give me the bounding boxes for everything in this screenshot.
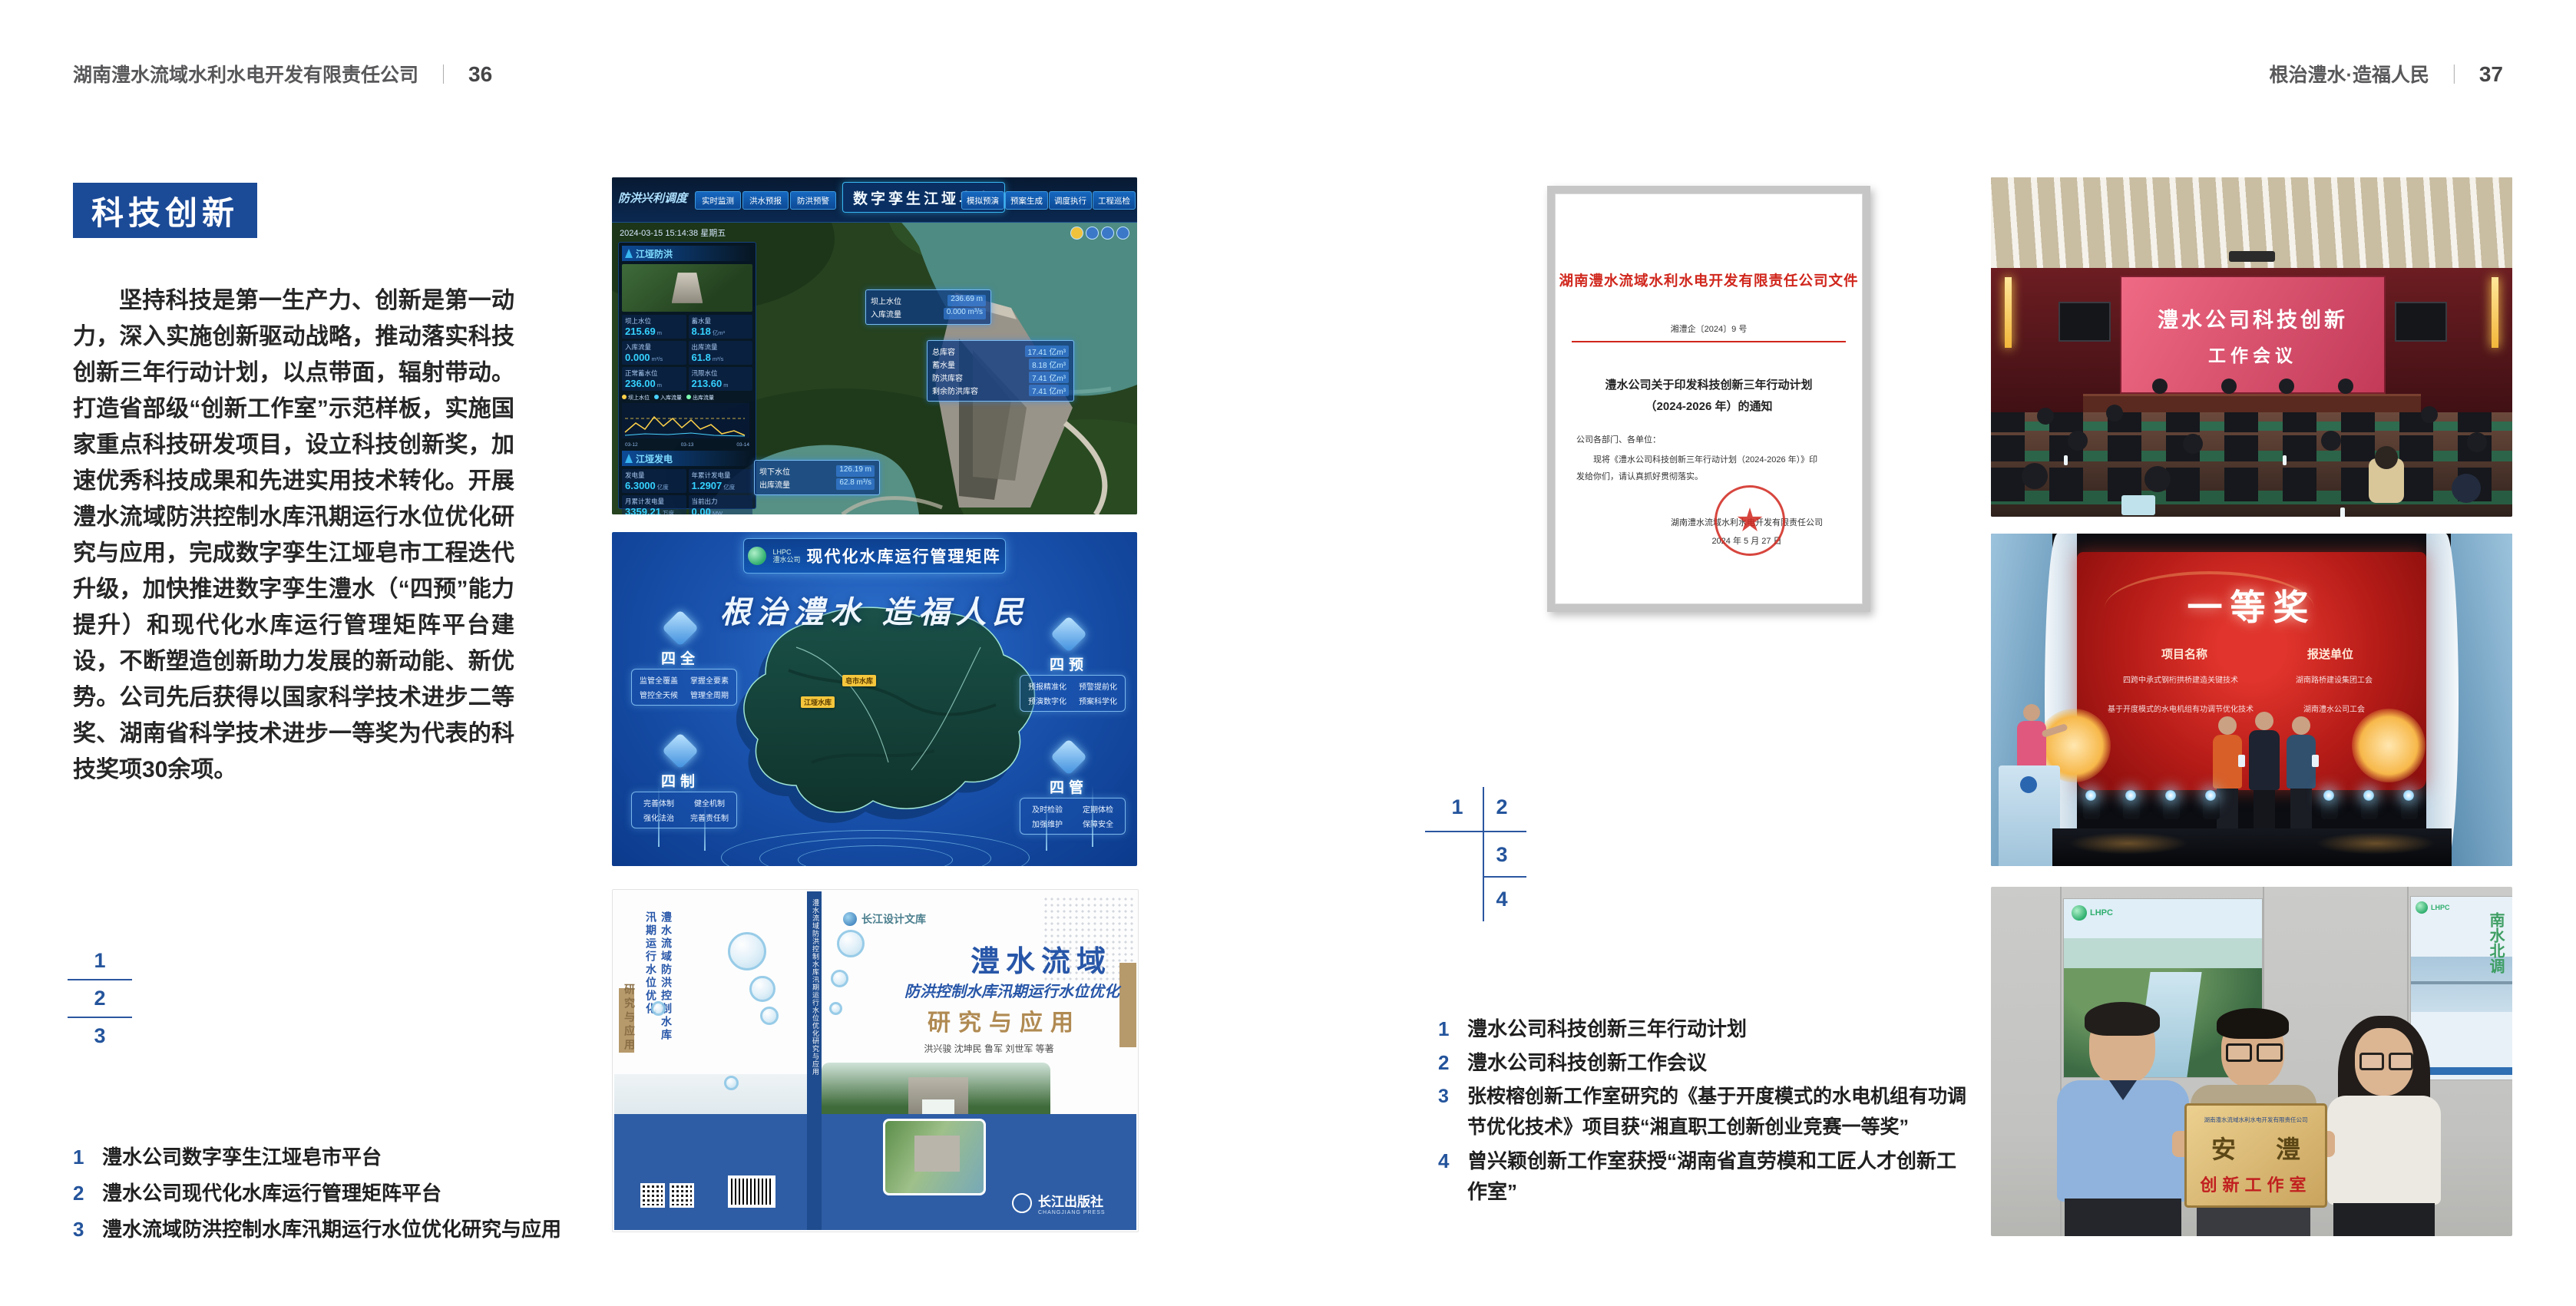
person-shirt-white — [2327, 1096, 2441, 1205]
stat-value: 213.60 — [692, 378, 723, 389]
matrix-panel-siquan: 监管全覆盖 掌握全要素 管控全天候 管理全周期 — [631, 669, 737, 706]
tab-plan-generation[interactable]: 预案生成 — [1005, 191, 1048, 210]
shirt-collar — [2109, 1080, 2137, 1100]
stat-label: 年累计发电量 — [692, 471, 750, 480]
callout-label: 坝上水位 — [871, 295, 901, 306]
caption-right-4: 4 曾兴颖创新工作室获授“湖南省直劳模和工匠人才创新工作室” — [1438, 1146, 1968, 1207]
avatar-icon[interactable] — [1070, 226, 1083, 240]
figure-number: 2 — [1486, 795, 1517, 819]
figure-meeting-photo: 澧水公司科技创新 工作会议 — [1991, 177, 2512, 517]
document-number: 湘澧企〔2024〕9 号 — [1555, 322, 1863, 335]
callout-label: 出库流量 — [759, 478, 790, 490]
attendee-head — [2022, 463, 2048, 489]
caption-number: 1 — [1438, 1013, 1467, 1044]
tab-inspection[interactable]: 工程巡检 — [1093, 191, 1136, 210]
matrix-panel-siyu: 预报精准化 预警提前化 预演数字化 预案科学化 — [1020, 675, 1126, 712]
matrix-title: 现代化水库运行管理矩阵 — [807, 544, 1001, 567]
panel-item: 监管全覆盖 — [635, 674, 683, 686]
innovation-studio-plaque: 湖南澧水流域水利水电开发有限责任公司 安 澧 创新工作室 — [2184, 1103, 2327, 1208]
brochure-spread: 湖南澧水流域水利水电开发有限责任公司 ｜ 36 根治澧水·造福人民 ｜ 37 科… — [0, 0, 2576, 1306]
attendee-head — [2106, 405, 2123, 422]
page-number-left: 36 — [468, 62, 492, 87]
stat-unit: MW — [713, 510, 723, 514]
figure-award-photo: 一等奖 项目名称 报送单位 四跨中承式钢桁拱桥建造关键技术 基于开度模式的水电机… — [1991, 534, 2512, 866]
panel-item: 预警提前化 — [1074, 680, 1122, 692]
chart-x-axis: 03-12 03-13 03-14 — [622, 442, 752, 448]
figure-number: 3 — [1486, 843, 1517, 867]
light-pillar — [1092, 785, 1093, 847]
attendee-head — [2037, 408, 2054, 425]
stat-label: 出库流量 — [692, 342, 750, 352]
matrix-panel-sizhi: 完善体制 健全机制 强化法治 完善责任制 — [631, 792, 737, 828]
callout-capacity: 总库容17.41 亿m³ 蓄水量8.18 亿m³ 防洪库容7.41 亿m³ 剩余… — [927, 340, 1074, 402]
figure-number: 1 — [1442, 795, 1473, 819]
glasses-icon — [2359, 1053, 2384, 1070]
panel-title: 四制 — [631, 770, 729, 791]
speaker-head — [2279, 379, 2294, 394]
plaque-subtitle: 创新工作室 — [2200, 1172, 2311, 1196]
callout-label: 坝下水位 — [759, 465, 790, 477]
panel-item: 掌握全要素 — [686, 674, 733, 686]
stage-pillar — [2426, 534, 2459, 866]
lhpc-logo-icon — [748, 547, 766, 565]
callout-label: 入库流量 — [871, 308, 901, 319]
plaque-name: 安 澧 — [2194, 1130, 2317, 1165]
host-figure — [2017, 721, 2046, 772]
barcode — [728, 1175, 775, 1208]
document-title: 湖南澧水流域水利水电开发有限责任公司文件 — [1555, 270, 1863, 290]
panel-item: 预演数字化 — [1023, 695, 1071, 706]
stage-floor — [2052, 828, 2452, 866]
callout-value: 236.69 m — [947, 295, 986, 306]
caption-text: 澧水公司数字孪生江垭皂市平台 — [102, 1142, 382, 1172]
wall-tv — [2058, 302, 2111, 342]
caption-number: 2 — [73, 1178, 102, 1208]
lhpc-logo-icon — [2072, 905, 2087, 921]
index-divider — [1483, 787, 1484, 921]
award-title: 一等奖 — [2077, 580, 2426, 630]
light-pillar — [704, 805, 706, 851]
document-subject-line1: 澧水公司关于印发科技创新三年行动计划 — [1555, 376, 1863, 392]
glasses-icon — [2226, 1043, 2252, 1062]
tab-simulation[interactable]: 模拟预演 — [961, 191, 1004, 210]
matrix-header: LHPC 澧水公司 现代化水库运行管理矩阵 — [743, 538, 1006, 574]
document-body-line2: 发给你们，请认真抓好贯彻落实。 — [1576, 470, 1844, 482]
panel-item: 及时检验 — [1023, 803, 1071, 815]
caption-number: 3 — [73, 1214, 102, 1245]
bell-icon[interactable] — [1086, 226, 1099, 240]
stat-label: 坝上水位 — [625, 316, 683, 326]
stat-unit: m — [657, 329, 662, 336]
stat-value: 0.000 — [625, 352, 650, 363]
trophy — [2238, 755, 2245, 767]
tab-flood-warning[interactable]: 防洪预警 — [790, 191, 836, 210]
water-bottle — [2283, 455, 2287, 465]
presenter-head — [2255, 712, 2273, 730]
caption-text: 澧水公司科技创新工作会议 — [1467, 1047, 1707, 1078]
glasses-icon — [2257, 1043, 2283, 1062]
stat-label: 月累计发电量 — [625, 497, 683, 506]
glasses-icon — [2389, 1053, 2413, 1070]
stage-light — [2123, 796, 2140, 819]
legend-item: 出库流量 — [693, 395, 714, 401]
award-unit: 湖南路桥建设集团工会 — [2273, 673, 2396, 685]
back-cover-tail: 研究与应用 — [622, 984, 637, 1060]
publisher-logo-icon — [1012, 1193, 1032, 1213]
recipient-head — [2292, 716, 2310, 735]
header-separator: ｜ — [2445, 60, 2464, 88]
stat-value: 6.3000 — [625, 480, 656, 491]
stage-light — [2401, 796, 2418, 819]
x-tick: 03-14 — [736, 442, 749, 448]
attendee-head — [2452, 474, 2481, 503]
figure-number: 4 — [1486, 888, 1517, 911]
book-spine: 澧水流域防洪控制水库汛期运行水位优化研究与应用 — [807, 891, 822, 1230]
callout-value: 8.18 亿m³ — [1029, 359, 1069, 370]
panel-item: 加强维护 — [1023, 818, 1071, 829]
lhpc-logo-icon — [2416, 901, 2428, 914]
body-paragraph: 坚持科技是第一生产力、创新是第一动力，深入实施创新驱动战略，推动落实科技创新三年… — [73, 283, 514, 788]
panel-title: 四全 — [631, 647, 729, 668]
stat-label: 发电量 — [625, 471, 683, 480]
callout-downstream: 坝下水位126.19 m 出库流量62.8 m³/s — [754, 460, 880, 495]
section-title: 科技创新 — [73, 183, 257, 238]
index-divider — [1425, 831, 1526, 832]
stage-light — [2361, 796, 2378, 819]
header-separator: ｜ — [434, 60, 453, 88]
award-col-right-header: 报送单位 — [2269, 646, 2392, 662]
caption-left-2: 2 澧水公司现代化水库运行管理矩阵平台 — [73, 1178, 580, 1208]
award-project: 四跨中承式钢桁拱桥建造关键技术 — [2100, 673, 2261, 685]
caption-text: 张桉榕创新工作室研究的《基于开度模式的水电机组有功调节优化技术》项目获“湘直职工… — [1467, 1081, 1976, 1142]
stat-unit: 亿度 — [657, 484, 669, 491]
panel-item: 完善责任制 — [686, 812, 733, 823]
caption-text: 澧水公司现代化水库运行管理矩阵平台 — [102, 1178, 441, 1208]
red-rule — [1572, 341, 1846, 342]
spine-title: 澧水流域防洪控制水库汛期运行水位优化研究与应用 — [811, 899, 821, 1152]
panel-title: 四管 — [1020, 776, 1118, 797]
water-bottle — [2340, 508, 2345, 517]
callout-label: 剩余防洪库容 — [932, 385, 978, 396]
book-title-tail: 研究与应用 — [904, 1003, 1104, 1037]
figure-index-left: 1 2 3 — [68, 949, 132, 1048]
wall-tv — [2395, 302, 2447, 342]
attendee-head — [2068, 431, 2088, 451]
light-pillar — [1046, 801, 1047, 851]
stage-light — [2321, 796, 2338, 819]
water-level-chart — [622, 403, 749, 438]
bubble-decoration — [837, 930, 865, 957]
seat-row — [1991, 468, 2512, 501]
callout-label: 蓄水量 — [932, 359, 955, 370]
figure-book-cover: 澧水流域防洪控制水库汛期运行水位优化 研究与应用 澧水流域防洪控制水库汛期运行水… — [612, 889, 1139, 1232]
bubble-decoration — [651, 1001, 666, 1016]
person-hair — [2217, 1008, 2289, 1039]
caption-left-1: 1 澧水公司数字孪生江垭皂市平台 — [73, 1142, 580, 1172]
stat-value: 8.18 — [692, 326, 711, 337]
person-trousers — [2065, 1199, 2181, 1236]
publisher-name: 长江出版社 — [1038, 1191, 1106, 1210]
bubble-decoration — [749, 976, 775, 1002]
person-skirt — [2333, 1203, 2435, 1236]
stat-value: 215.69 — [625, 326, 656, 337]
stage-light — [2083, 796, 2100, 819]
rostrum-table — [2083, 394, 2421, 415]
speaker-head — [2221, 379, 2237, 394]
poster-vertical-title: 南水北调 — [2485, 912, 2507, 1027]
qr-code — [670, 1183, 694, 1208]
tab-realtime-monitor[interactable]: 实时监测 — [695, 191, 741, 210]
person-hair — [2085, 1002, 2160, 1036]
caption-text: 曾兴颖创新工作室获授“湖南省直劳模和工匠人才创新工作室” — [1467, 1146, 1968, 1207]
podium-emblem-icon — [2020, 776, 2037, 793]
dam-shape — [672, 273, 703, 303]
globe-icon — [843, 912, 857, 926]
figure-number: 3 — [68, 1024, 132, 1048]
bubble-decoration — [829, 1002, 842, 1015]
panel-title: 江垭发电 — [622, 451, 752, 466]
front-tan-tab — [1119, 963, 1136, 1047]
figure-number: 1 — [68, 949, 132, 973]
figure-management-matrix: LHPC 澧水公司 现代化水库运行管理矩阵 根治澧水 造福人民 皂市水库 江垭水… — [612, 532, 1137, 866]
panel-item: 预案科学化 — [1074, 695, 1122, 706]
callout-value: 62.8 m³/s — [836, 478, 875, 490]
document-body-line1: 现将《澧水公司科技创新三年行动计划（2024-2026 年）》印 — [1593, 453, 1844, 465]
figure-number: 2 — [68, 987, 132, 1010]
stat-label: 当前出力 — [692, 497, 750, 506]
power-stats: 发电量6.3000亿度 年累计发电量1.2907亿度 月累计发电量3359.21… — [622, 469, 752, 514]
stat-unit: 万度 — [663, 510, 674, 514]
dashboard-corner-label: 防洪兴利调度 — [618, 190, 687, 206]
wall-lamp — [2492, 277, 2498, 348]
caption-right-2: 2 澧水公司科技创新工作会议 — [1438, 1047, 1968, 1078]
qr-code — [640, 1183, 665, 1208]
caption-number: 4 — [1438, 1146, 1467, 1207]
floor-reflection — [2068, 832, 2188, 855]
panel-item: 预报精准化 — [1023, 680, 1071, 692]
series-row: 长江设计文库 — [843, 911, 926, 927]
caption-right-3: 3 张桉榕创新工作室研究的《基于开度模式的水电机组有功调节优化技术》项目获“湘直… — [1438, 1081, 1976, 1142]
legend-item: 坝上水位 — [628, 395, 650, 401]
panel-item: 管理全周期 — [686, 689, 733, 700]
tissue-box — [2121, 495, 2155, 515]
stat-unit: m³/s — [713, 355, 724, 362]
stat-unit: m³/s — [652, 355, 663, 362]
caption-text: 澧水公司科技创新三年行动计划 — [1467, 1013, 1747, 1044]
company-name: 湖南澧水流域水利水电开发有限责任公司 — [73, 60, 418, 88]
tab-dispatch[interactable]: 调度执行 — [1049, 191, 1092, 210]
dam-thumbnail — [622, 264, 752, 312]
stat-unit: m — [723, 382, 728, 388]
chart-legend: 坝上水位 入库流量 出库流量 — [622, 394, 752, 402]
cover-photo-station — [883, 1119, 986, 1195]
stat-value: 1.2907 — [692, 480, 723, 491]
reservoir-stats: 坝上水位215.69m 蓄水量8.18亿m³ 入库流量0.000m³/s 出库流… — [622, 315, 752, 391]
attendee-head — [2321, 431, 2341, 451]
caption-text: 澧水流域防洪控制水库汛期运行水位优化研究与应用 — [102, 1214, 561, 1245]
host-head — [2023, 704, 2040, 721]
attendee-head — [2421, 406, 2438, 423]
speaker-head — [2152, 379, 2168, 394]
recipient-head — [2218, 716, 2237, 735]
dashboard-left-panel: 江垭防洪 坝上水位215.69m 蓄水量8.18亿m³ 入库流量0.000m³/… — [618, 242, 756, 509]
logo-abbr: LHPC — [772, 548, 800, 556]
page-header-right: 根治澧水·造福人民 ｜ 37 — [2270, 60, 2504, 88]
caption-right-1: 1 澧水公司科技创新三年行动计划 — [1438, 1013, 1968, 1044]
screen-title-line1: 澧水公司科技创新 — [2158, 303, 2348, 333]
matrix-panel-siguan: 及时检验 定期体检 加强维护 保障安全 — [1020, 798, 1126, 835]
screen-title-line2: 工作会议 — [2208, 341, 2297, 367]
document-sheet: 湖南澧水流域水利水电开发有限责任公司文件 湘澧企〔2024〕9 号 澧水公司关于… — [1555, 193, 1863, 604]
caption-number: 1 — [73, 1142, 102, 1172]
water-bottle — [2064, 455, 2068, 465]
award-project: 基于开度模式的水电机组有功调节优化技术 — [2100, 703, 2261, 714]
stage-light — [2163, 796, 2180, 819]
index-divider — [1483, 876, 1526, 878]
meeting-screen: 澧水公司科技创新 工作会议 — [2120, 276, 2386, 394]
trophy — [2312, 755, 2319, 767]
caption-left-3: 3 澧水流域防洪控制水库汛期运行水位优化研究与应用 — [73, 1214, 580, 1245]
stat-label: 入库流量 — [625, 342, 683, 352]
panel-title: 四预 — [1020, 653, 1118, 674]
dam-shape — [914, 1136, 960, 1172]
callout-value: 7.41 亿m³ — [1029, 385, 1069, 396]
attendee-head — [2183, 434, 2203, 454]
publisher-en: CHANGJIANG PRESS — [1038, 1210, 1106, 1215]
bubble-decoration — [760, 1007, 779, 1025]
award-col-left-header: 项目名称 — [2123, 646, 2246, 662]
host-podium — [1999, 765, 2060, 866]
figure-plaque-photo: LHPC LHPC 南水北调 — [1991, 887, 2512, 1236]
official-seal-icon — [1715, 485, 1785, 556]
back-cover-title: 澧水流域防洪控制水库汛期运行水位优化 — [643, 911, 674, 1048]
stage-light — [2203, 796, 2220, 819]
person-shirt-blue — [2057, 1080, 2189, 1202]
x-tick: 03-13 — [681, 442, 694, 448]
book-title-main: 澧水流域 — [866, 937, 1112, 980]
bubble-decoration — [728, 932, 766, 970]
caption-number: 3 — [1438, 1081, 1467, 1142]
dashboard-timestamp: 2024-03-15 15:14:38 星期五 — [620, 226, 726, 239]
legend-item: 入库流量 — [660, 395, 682, 401]
stat-unit: 亿m³ — [713, 329, 725, 336]
logo-name: 澧水公司 — [772, 556, 800, 564]
projector — [2229, 251, 2275, 262]
back-water-band — [614, 1074, 807, 1114]
speaker-head — [2338, 379, 2353, 394]
series-name: 长江设计文库 — [861, 911, 926, 927]
x-tick: 03-12 — [625, 442, 638, 448]
back-bottom-band — [614, 1114, 807, 1230]
callout-value: 7.41 亿m³ — [1029, 372, 1069, 383]
light-pillar — [658, 785, 660, 847]
stat-label: 汛限水位 — [692, 369, 750, 378]
tab-flood-forecast[interactable]: 洪水预报 — [742, 191, 789, 210]
locate-icon[interactable] — [1101, 226, 1114, 240]
page-number-right: 37 — [2479, 62, 2503, 87]
panel-item: 保障安全 — [1074, 818, 1122, 829]
index-divider — [68, 979, 132, 980]
stat-unit: 亿度 — [723, 484, 735, 491]
page-header-left: 湖南澧水流域水利水电开发有限责任公司 ｜ 36 — [73, 60, 492, 88]
panel-item: 定期体检 — [1074, 803, 1122, 815]
callout-label: 防洪库容 — [932, 372, 963, 383]
stage-side-wall — [2451, 534, 2512, 866]
publisher-row: 长江出版社 CHANGJIANG PRESS — [1012, 1191, 1106, 1215]
stat-value: 0.00 — [692, 506, 711, 514]
reservoir-label: 江垭水库 — [801, 696, 835, 708]
bubble-decoration — [724, 1076, 739, 1090]
callout-value: 126.19 m — [836, 465, 875, 477]
callout-label: 总库容 — [932, 346, 955, 357]
figure-official-document: 湖南澧水流域水利水电开发有限责任公司文件 湘澧企〔2024〕9 号 澧水公司关于… — [1547, 186, 1870, 612]
stage-glow-orb — [2352, 709, 2426, 782]
figure-digital-twin-dashboard: 防洪兴利调度 实时监测 洪水预报 防洪预警 数字孪生江垭皂市 模拟预演 预案生成… — [612, 177, 1137, 514]
attendee-head — [2467, 432, 2487, 452]
callout-upstream: 坝上水位236.69 m 入库流量0.000 m³/s — [865, 289, 991, 325]
stat-label: 正常蓄水位 — [625, 369, 683, 378]
panel-item: 管控全天候 — [635, 689, 683, 700]
plaque-org: 湖南澧水流域水利水电开发有限责任公司 — [2204, 1116, 2308, 1124]
stat-value: 236.00 — [625, 378, 656, 389]
callout-value: 17.41 亿m³ — [1025, 346, 1069, 357]
book-title-sub: 防洪控制水库汛期运行水位优化 — [843, 979, 1119, 1001]
book-authors: 洪兴骏 沈坤民 鲁军 刘世军 等著 — [866, 1042, 1112, 1055]
wall-lamp — [2005, 277, 2012, 348]
poster-logo-text: LHPC — [2431, 904, 2450, 911]
floor-reflection — [2316, 832, 2435, 855]
stat-value: 61.8 — [692, 352, 711, 363]
index-divider — [68, 1017, 132, 1018]
poster-logo-text: LHPC — [2090, 908, 2113, 918]
presenter-suit — [2249, 730, 2280, 790]
caption-number: 2 — [1438, 1047, 1467, 1078]
panel-item: 健全机制 — [686, 797, 733, 808]
stat-label: 蓄水量 — [692, 316, 750, 326]
document-subject-line2: （2024-2026 年）的通知 — [1555, 398, 1863, 414]
alarm-icon[interactable] — [1116, 226, 1129, 240]
stat-unit: m — [657, 382, 662, 388]
attendee-head — [2375, 446, 2398, 469]
document-salutation: 公司各部门、各单位： — [1576, 433, 1661, 445]
callout-value: 0.000 m³/s — [944, 308, 986, 319]
reservoir-label: 皂市水库 — [842, 675, 876, 686]
slogan-text: 根治澧水·造福人民 — [2270, 60, 2429, 88]
stat-value: 3359.21 — [625, 506, 661, 514]
panel-title: 江垭防洪 — [622, 246, 752, 261]
attendee-head — [2144, 466, 2171, 492]
